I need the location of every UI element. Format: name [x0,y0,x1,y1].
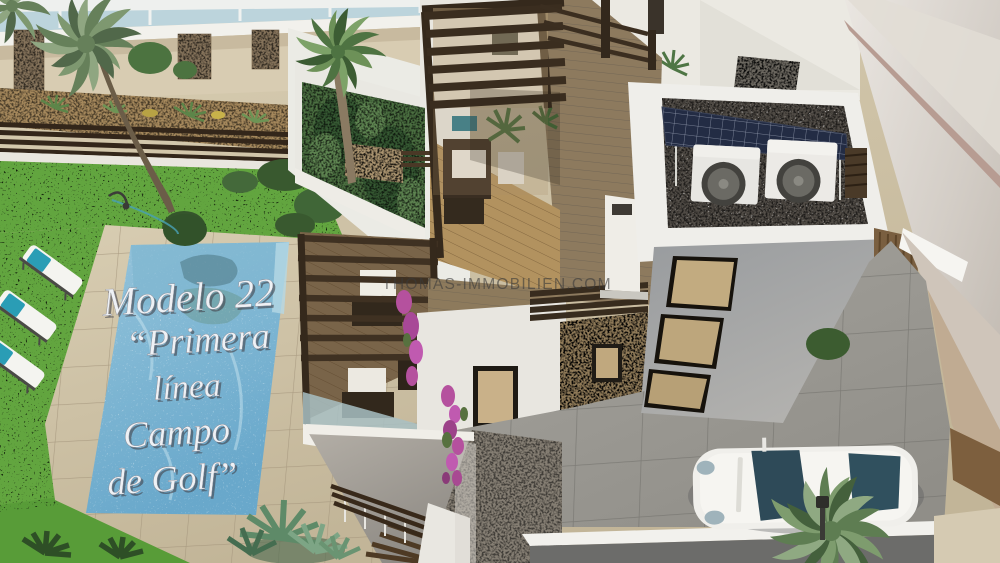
svg-text:línea: línea [152,367,222,408]
svg-text:de Golf”: de Golf” [106,455,239,504]
svg-text:Campo: Campo [122,409,231,456]
svg-text:THOMAS-IMMOBILIEN.COM: THOMAS-IMMOBILIEN.COM [382,276,612,293]
svg-text:“Primera: “Primera [125,316,271,366]
